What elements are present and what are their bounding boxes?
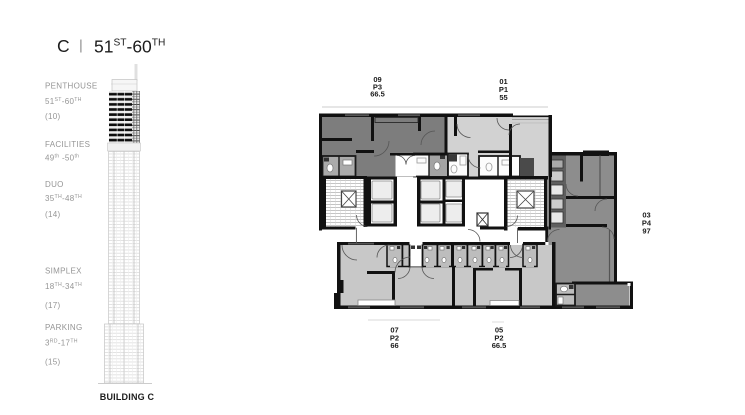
svg-text:DUO: DUO (45, 180, 64, 189)
svg-text:97: 97 (642, 227, 650, 236)
svg-text:66.5: 66.5 (370, 89, 385, 98)
svg-text:(15): (15) (45, 358, 60, 367)
svg-text:FACILITIES: FACILITIES (45, 140, 90, 149)
svg-text:66.5: 66.5 (492, 341, 507, 350)
svg-text:(14): (14) (45, 210, 60, 219)
svg-text:BUILDING C: BUILDING C (100, 392, 155, 402)
svg-text:C: C (57, 36, 70, 56)
svg-text:66: 66 (390, 341, 398, 350)
svg-text:(10): (10) (45, 112, 60, 121)
svg-text:PARKING: PARKING (45, 323, 83, 332)
svg-text:SIMPLEX: SIMPLEX (45, 267, 82, 276)
svg-text:(17): (17) (45, 301, 60, 310)
svg-text:55: 55 (499, 93, 507, 102)
svg-text:PENTHOUSE: PENTHOUSE (45, 82, 98, 91)
svg-text:49th -50th: 49th -50th (45, 154, 79, 163)
